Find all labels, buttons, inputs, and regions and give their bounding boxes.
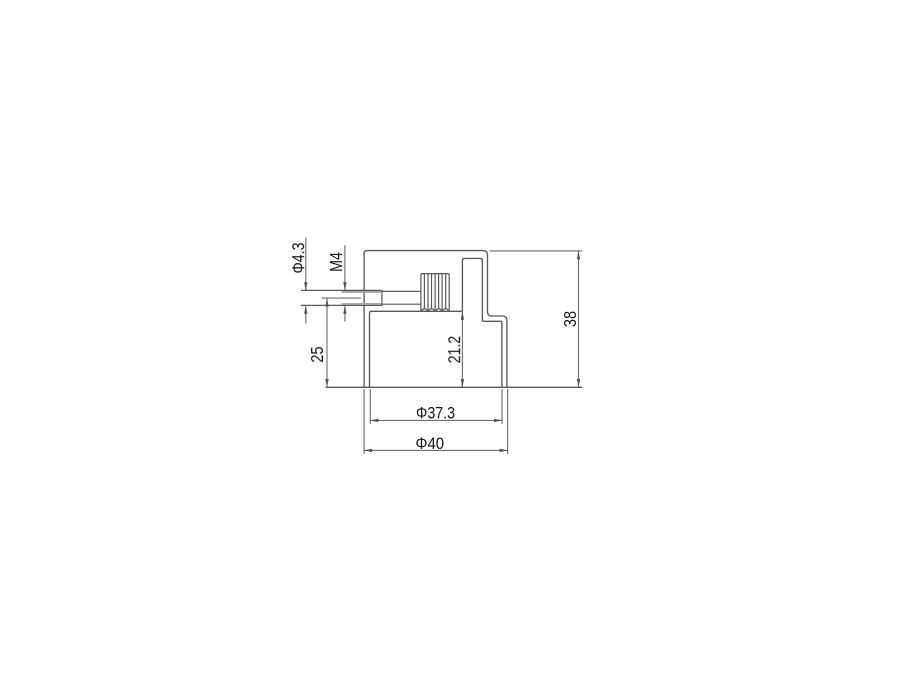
svg-text:Φ4.3: Φ4.3 (288, 243, 308, 274)
svg-text:Φ37.3: Φ37.3 (416, 405, 455, 423)
svg-text:21.2: 21.2 (444, 336, 464, 364)
svg-text:M4: M4 (326, 252, 346, 272)
svg-text:38: 38 (560, 311, 580, 327)
svg-text:25: 25 (307, 346, 327, 362)
svg-text:Φ40: Φ40 (416, 435, 445, 453)
